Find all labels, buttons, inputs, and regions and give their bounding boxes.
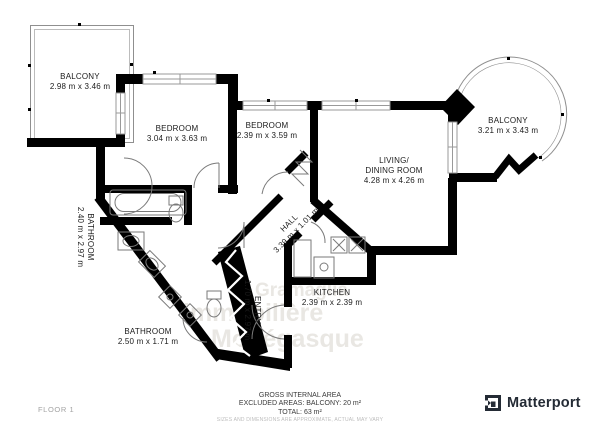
room-dims: 2.39 m x 2.39 m [302,298,362,308]
matterport-logo: Matterport [484,394,581,412]
matterport-icon [484,394,502,412]
window-bedroom-2-top [243,101,307,110]
room-label-balcony-left: BALCONY 2.98 m x 3.46 m [50,72,110,92]
room-dims: 2.50 m x 1.71 m [118,337,178,347]
room-label-entry: ENTRY 1.70 m x 2.97 m [242,280,262,340]
walls [27,74,497,371]
room-name: BATHROOM [118,327,178,337]
matterport-wordmark: Matterport [507,395,581,411]
room-dims: 2.98 m x 3.46 m [50,82,110,92]
room-dims: 1.70 m x 2.97 m [242,280,252,340]
room-dims: 3.21 m x 3.43 m [478,126,538,136]
wardrobe-arc-1 [124,158,152,186]
room-name: BALCONY [478,116,538,126]
room-name: KITCHEN [302,288,362,298]
floor-label: FLOOR 1 [38,405,74,414]
balcony-door-right [448,122,457,173]
room-label-bathroom-left: BATHROOM 2.40 m x 2.97 m [75,207,95,267]
room-label-kitchen: KITCHEN 2.39 m x 2.39 m [302,288,362,308]
room-name: BEDROOM [237,121,297,131]
toilet-icon [207,291,221,317]
room-label-bedroom-2: BEDROOM 2.39 m x 3.59 m [237,121,297,141]
room-name: DINING ROOM [364,166,424,176]
door-bedroom-1 [194,163,219,188]
room-label-living-dining: LIVING/ DINING ROOM 4.28 m x 4.26 m [364,156,424,186]
window-living-top [322,101,390,110]
excluded-areas: EXCLUDED AREAS: BALCONY: 20 m² [217,400,383,408]
gross-internal-area: GROSS INTERNAL AREA [217,392,383,400]
room-dims: 2.39 m x 3.59 m [237,131,297,141]
total-area: TOTAL: 63 m² [217,409,383,417]
room-name: BALCONY [50,72,110,82]
balcony-door-left [116,93,125,134]
room-dims: 2.40 m x 2.97 m [75,207,85,267]
area-summary: GROSS INTERNAL AREA EXCLUDED AREAS: BALC… [217,392,383,424]
room-name: BATHROOM [85,207,95,267]
window-bedroom-1-top [143,74,216,84]
room-label-balcony-right: BALCONY 3.21 m x 3.43 m [478,116,538,136]
room-label-bedroom-1: BEDROOM 3.04 m x 3.63 m [147,124,207,144]
door-arcs [124,150,325,342]
door-bedroom-2 [262,172,288,194]
room-dims: 4.28 m x 4.26 m [364,176,424,186]
room-dims: 3.04 m x 3.63 m [147,134,207,144]
kitchen-sink-icon [294,240,334,278]
room-name: LIVING/ [364,156,424,166]
disclaimer: SIZES AND DIMENSIONS ARE APPROXIMATE, AC… [217,418,383,424]
floorplan-page: Gramaglia immobilière Monégasque [0,0,600,424]
room-name: ENTRY [252,280,262,340]
room-label-bathroom-bottom: BATHROOM 2.50 m x 1.71 m [118,327,178,347]
room-name: BEDROOM [147,124,207,134]
door-kitchen [311,222,325,243]
door-bathroom-left [218,222,244,248]
bathtub-icon [110,190,186,215]
